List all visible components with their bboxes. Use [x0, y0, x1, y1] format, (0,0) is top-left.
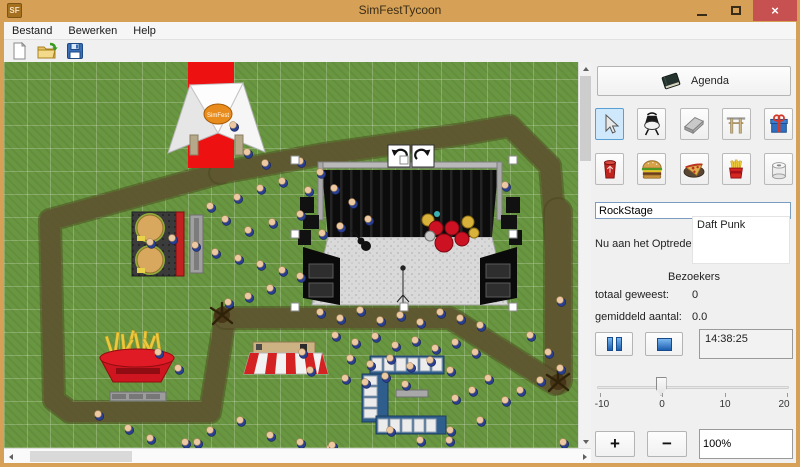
- selection-handle: [400, 303, 408, 311]
- menu-help[interactable]: Help: [125, 24, 164, 38]
- new-document-icon: [9, 41, 29, 61]
- map-canvas[interactable]: SimFest: [4, 62, 578, 448]
- zoom-level-input[interactable]: [699, 429, 793, 459]
- open-folder-icon: [36, 41, 58, 61]
- hamburger-icon: [640, 158, 664, 180]
- slider-label-max: 20: [778, 399, 789, 410]
- slider-tick: [725, 393, 726, 397]
- app-window: SF SimFestTycoon × Bestand Bewerken Help: [0, 0, 800, 467]
- pizza-icon: [682, 159, 706, 179]
- vertical-scrollbar[interactable]: [578, 62, 591, 448]
- slider-tick: [600, 393, 601, 397]
- scroll-left-button[interactable]: [4, 450, 17, 463]
- scroll-up-button[interactable]: [579, 62, 592, 75]
- tool-toilet-paper[interactable]: [764, 153, 793, 185]
- selection-handle: [291, 156, 299, 164]
- now-playing-item[interactable]: Daft Punk: [697, 219, 785, 231]
- maximize-icon: [731, 6, 741, 15]
- menu-bestand[interactable]: Bestand: [4, 24, 60, 38]
- open-file-button[interactable]: [36, 41, 58, 61]
- selection-handle: [400, 156, 408, 164]
- tool-spotlight[interactable]: [637, 108, 666, 140]
- visitors-total-label: totaal geweest:: [595, 289, 669, 301]
- selection-handle: [509, 303, 517, 311]
- arrow-right-icon: [583, 454, 587, 460]
- rotate-right-button[interactable]: [412, 145, 434, 167]
- zoom-out-button[interactable]: −: [647, 431, 687, 457]
- slider-label-0: 0: [659, 399, 665, 410]
- pause-icon: [607, 337, 622, 351]
- save-file-button[interactable]: [64, 41, 86, 61]
- tool-burger[interactable]: [637, 153, 666, 185]
- arrow-left-icon: [9, 454, 13, 460]
- speed-slider-track[interactable]: [597, 386, 789, 389]
- menubar: Bestand Bewerken Help: [4, 22, 796, 40]
- visitors-header: Bezoekers: [592, 271, 796, 283]
- stop-icon: [657, 338, 672, 351]
- vertical-scroll-thumb[interactable]: [580, 76, 591, 161]
- selection-handle: [509, 230, 517, 238]
- agenda-button[interactable]: Agenda: [597, 66, 791, 96]
- slider-tick: [662, 393, 663, 397]
- selection-handle: [291, 230, 299, 238]
- close-icon: ×: [771, 3, 779, 18]
- scroll-right-button[interactable]: [578, 450, 591, 463]
- selection-handle: [509, 156, 517, 164]
- arrow-up-icon: [583, 67, 589, 71]
- toilet-paper-icon: [768, 158, 790, 180]
- save-floppy-icon: [65, 41, 85, 61]
- striped-stall[interactable]: [244, 342, 328, 374]
- slider-label-10: 10: [719, 399, 730, 410]
- close-button[interactable]: ×: [753, 0, 797, 21]
- stage-light-rig-left: [298, 197, 319, 245]
- fries-icon: [726, 158, 746, 180]
- gift-icon: [768, 113, 790, 135]
- visitors-total-value: 0: [692, 289, 698, 301]
- tool-select[interactable]: [595, 108, 624, 140]
- slider-tick: [787, 393, 788, 397]
- titlebar[interactable]: SF SimFestTycoon ×: [0, 0, 800, 22]
- select-cursor-icon: [600, 113, 620, 135]
- horizontal-scroll-thumb[interactable]: [30, 451, 132, 462]
- agenda-book-icon: [659, 69, 683, 93]
- now-playing-label: Nu aan het Optreden:: [595, 238, 701, 250]
- spotlight-icon: [641, 112, 663, 136]
- tent-logo-text: SimFest: [207, 113, 229, 119]
- selection-handle: [291, 303, 299, 311]
- stop-button[interactable]: [645, 332, 683, 356]
- tool-trash[interactable]: [595, 153, 624, 185]
- pause-button[interactable]: [595, 332, 633, 356]
- trash-can-icon: [600, 158, 620, 180]
- scroll-down-button[interactable]: [579, 435, 592, 448]
- now-playing-listbox[interactable]: Daft Punk: [692, 216, 790, 264]
- app-body: Bestand Bewerken Help: [4, 22, 796, 463]
- tool-fries[interactable]: [722, 153, 751, 185]
- minimize-button[interactable]: [685, 0, 719, 21]
- speed-slider-thumb[interactable]: [656, 377, 667, 396]
- stage-floor: [312, 237, 508, 305]
- control-panel: Agenda: [592, 62, 796, 463]
- slider-label-min: -10: [595, 399, 609, 410]
- menu-bewerken[interactable]: Bewerken: [60, 24, 125, 38]
- tool-gate[interactable]: [722, 108, 751, 140]
- visitors-average-value: 0.0: [692, 311, 707, 323]
- maximize-button[interactable]: [719, 0, 753, 21]
- visitors-average-label: gemiddeld aantal:: [595, 311, 682, 323]
- tool-pizza[interactable]: [680, 153, 709, 185]
- clock-display: 14:38:25: [699, 329, 793, 359]
- new-file-button[interactable]: [8, 41, 30, 61]
- toolbar: [4, 40, 796, 62]
- path-tile-icon: [682, 113, 706, 135]
- stage[interactable]: [298, 162, 522, 305]
- stage-gate-icon: [724, 113, 748, 135]
- festival-map: SimFest: [4, 62, 578, 448]
- minimize-icon: [697, 14, 707, 16]
- arrow-down-icon: [583, 440, 589, 444]
- tool-gift[interactable]: [764, 108, 793, 140]
- horizontal-scrollbar[interactable]: [4, 448, 591, 463]
- zoom-in-button[interactable]: +: [595, 431, 635, 457]
- tool-path[interactable]: [680, 108, 709, 140]
- window-title: SimFestTycoon: [0, 3, 800, 17]
- fries-stand[interactable]: [100, 330, 174, 401]
- agenda-label: Agenda: [691, 75, 729, 87]
